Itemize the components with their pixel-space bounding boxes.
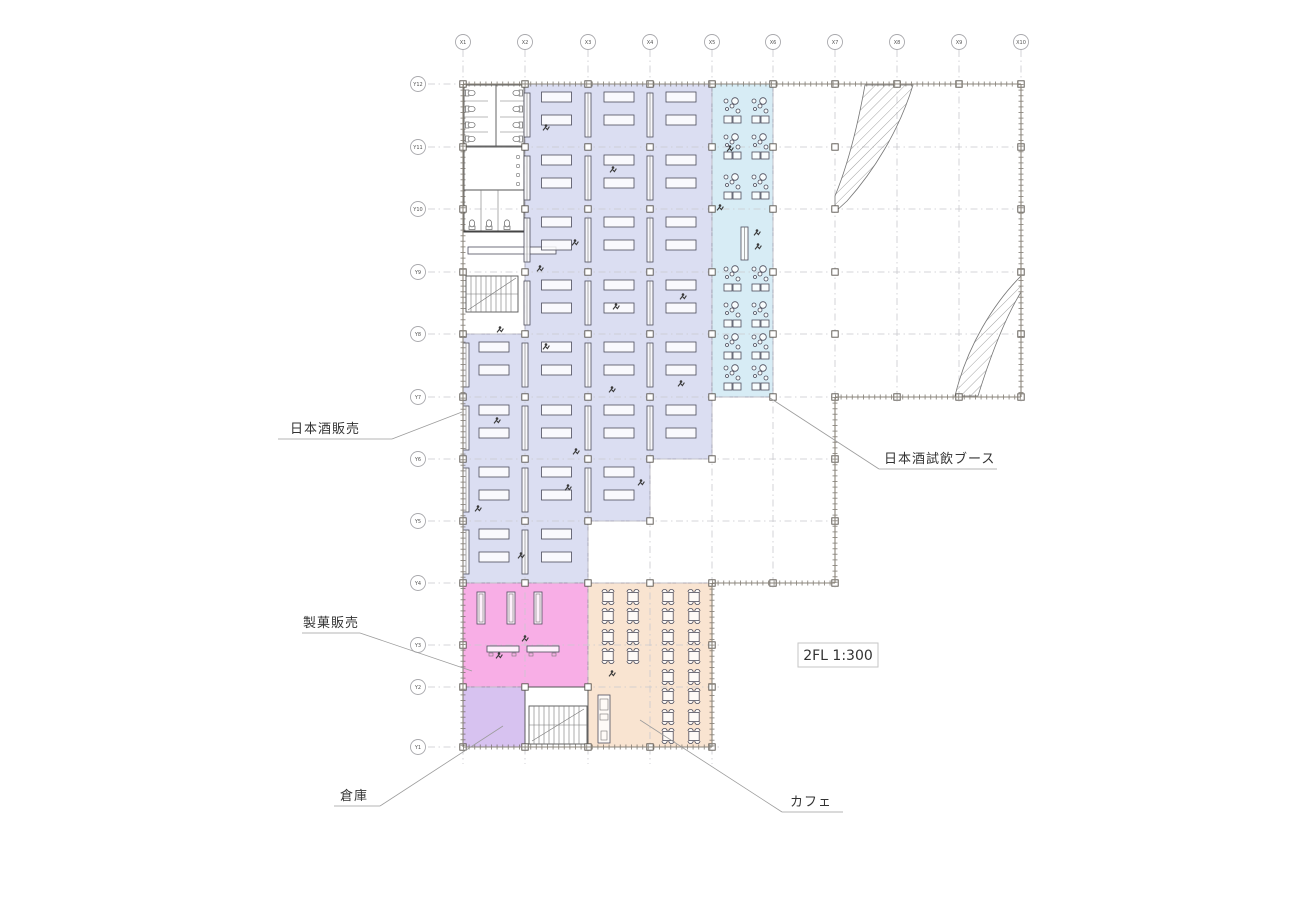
column-marker	[709, 206, 715, 212]
square-table	[761, 352, 769, 359]
display-table	[666, 178, 696, 188]
round-table	[760, 334, 767, 341]
stairs-upper	[466, 276, 518, 312]
square-table	[733, 383, 741, 390]
round-table	[736, 376, 740, 380]
round-table	[764, 109, 768, 113]
column-marker	[832, 144, 838, 150]
display-table	[542, 467, 572, 477]
display-table	[479, 552, 509, 562]
square-table	[724, 192, 732, 199]
column-marker	[770, 394, 776, 400]
round-table	[726, 184, 729, 187]
label-cafe: カフェ	[790, 795, 832, 810]
square-table	[733, 320, 741, 327]
grid-bubble-x9-label: X9	[956, 40, 963, 46]
display-table	[604, 155, 634, 165]
round-table	[764, 313, 768, 317]
column-marker	[522, 206, 528, 212]
grid-bubble-y-label: Y7	[414, 395, 421, 401]
column-marker	[832, 331, 838, 337]
display-table	[604, 115, 634, 125]
column-marker	[585, 144, 591, 150]
label-storage: 倉庫	[340, 789, 368, 804]
display-table	[604, 428, 634, 438]
column-marker	[522, 518, 528, 524]
round-table	[754, 312, 757, 315]
display-table	[666, 428, 696, 438]
round-table	[760, 134, 767, 141]
square-table	[761, 192, 769, 199]
round-table	[758, 272, 762, 276]
column-marker	[832, 269, 838, 275]
grid-bubble-y-label: Y1	[414, 745, 421, 751]
round-table	[736, 109, 740, 113]
square-table	[724, 320, 732, 327]
grid-bubble-x5-label: X5	[709, 40, 716, 46]
column-marker	[647, 456, 653, 462]
round-table	[752, 267, 756, 271]
column-marker	[522, 269, 528, 275]
scale-annotation: 2FL 1:300	[798, 643, 878, 667]
label-confectionery: 製菓販売	[303, 615, 359, 631]
round-table	[764, 376, 768, 380]
display-table	[666, 217, 696, 227]
round-table	[724, 366, 728, 370]
round-table	[736, 277, 740, 281]
display-table	[542, 155, 572, 165]
column-marker	[647, 206, 653, 212]
display-table	[604, 365, 634, 375]
column-marker	[522, 684, 528, 690]
square-table	[724, 383, 732, 390]
column-marker	[770, 269, 776, 275]
round-table	[732, 302, 739, 309]
round-table	[758, 371, 762, 375]
round-table	[754, 276, 757, 279]
column-marker	[709, 456, 715, 462]
square-table	[761, 152, 769, 159]
square-table	[761, 320, 769, 327]
square-table	[724, 352, 732, 359]
column-marker	[585, 580, 591, 586]
column-marker	[647, 331, 653, 337]
display-table	[542, 240, 572, 250]
display-table	[666, 240, 696, 250]
display-table	[479, 428, 509, 438]
display-table	[542, 405, 572, 415]
round-table	[754, 344, 757, 347]
square-table	[752, 116, 760, 123]
grid-bubble-x6-label: X6	[770, 40, 777, 46]
display-table	[604, 240, 634, 250]
column-marker	[522, 394, 528, 400]
grid-bubble-x1-label: X1	[460, 40, 467, 46]
column-marker	[585, 331, 591, 337]
square-table	[733, 352, 741, 359]
display-table	[479, 365, 509, 375]
display-table	[604, 405, 634, 415]
round-table	[736, 185, 740, 189]
grid-bubble-x8-label: X8	[894, 40, 901, 46]
column-marker	[522, 456, 528, 462]
display-table	[542, 490, 572, 500]
column-marker	[585, 269, 591, 275]
round-table	[752, 175, 756, 179]
column-marker	[585, 394, 591, 400]
column-marker	[647, 269, 653, 275]
round-table	[752, 135, 756, 139]
display-table	[604, 178, 634, 188]
square-table	[752, 383, 760, 390]
display-table	[604, 467, 634, 477]
round-table	[760, 365, 767, 372]
display-table	[542, 303, 572, 313]
round-table	[732, 98, 739, 105]
column-marker	[585, 518, 591, 524]
grid-bubble-y-label: Y2	[414, 685, 421, 691]
display-table	[479, 529, 509, 539]
label-sake-sales: 日本酒販売	[290, 421, 360, 437]
round-table	[726, 276, 729, 279]
round-table	[754, 108, 757, 111]
round-table	[724, 267, 728, 271]
round-table	[732, 266, 739, 273]
round-table	[760, 174, 767, 181]
atrium-ramps	[835, 85, 1021, 396]
square-table	[761, 284, 769, 291]
display-table	[666, 405, 696, 415]
zone-storage	[463, 687, 525, 747]
round-table	[736, 313, 740, 317]
square-table	[733, 116, 741, 123]
round-table	[730, 340, 734, 344]
column-marker	[522, 580, 528, 586]
column-marker	[647, 518, 653, 524]
round-table	[764, 277, 768, 281]
round-table	[736, 345, 740, 349]
square-table	[752, 192, 760, 199]
display-table	[666, 280, 696, 290]
display-table	[666, 342, 696, 352]
tasting-counter	[741, 227, 748, 260]
display-table	[666, 115, 696, 125]
round-table	[730, 308, 734, 312]
grid-bubble-x4-label: X4	[647, 40, 654, 46]
grid-bubble-x2-label: X2	[522, 40, 529, 46]
round-table	[754, 144, 757, 147]
round-table	[758, 104, 762, 108]
display-table	[542, 92, 572, 102]
grid-bubble-y-label: Y6	[414, 457, 421, 463]
column-marker	[522, 331, 528, 337]
round-table	[758, 308, 762, 312]
grid-bubble-x10-label: X10	[1016, 40, 1026, 46]
round-table	[732, 174, 739, 181]
display-table	[604, 342, 634, 352]
grid-bubble-y-label: Y12	[412, 82, 422, 88]
round-table	[726, 144, 729, 147]
display-table	[542, 529, 572, 539]
square-table	[752, 284, 760, 291]
round-table	[758, 340, 762, 344]
display-table	[604, 217, 634, 227]
square-table	[761, 116, 769, 123]
round-table	[736, 145, 740, 149]
grid-bubble-y-label: Y3	[414, 643, 421, 649]
display-table	[542, 178, 572, 188]
display-table	[604, 280, 634, 290]
square-table	[724, 116, 732, 123]
round-table	[760, 266, 767, 273]
square-table	[733, 284, 741, 291]
cafe-counter	[598, 695, 610, 743]
round-table	[752, 303, 756, 307]
square-table	[724, 284, 732, 291]
ramp-band-upper	[835, 85, 913, 212]
display-table	[604, 490, 634, 500]
round-table	[732, 134, 739, 141]
grid-bubble-y-label: Y10	[412, 207, 422, 213]
grid-bubble-x3-label: X3	[585, 40, 592, 46]
round-table	[758, 140, 762, 144]
round-table	[764, 345, 768, 349]
display-table	[542, 280, 572, 290]
square-table	[752, 352, 760, 359]
display-table	[666, 365, 696, 375]
square-table	[761, 383, 769, 390]
display-table	[542, 552, 572, 562]
display-table	[666, 92, 696, 102]
column-marker	[770, 144, 776, 150]
round-table	[752, 335, 756, 339]
round-table	[764, 185, 768, 189]
floor-plan-page: X1X2X3X4X5X6X7X8X9X10Y12Y11Y10Y9Y8Y7Y6Y5…	[0, 0, 1300, 919]
column-marker	[647, 144, 653, 150]
round-table	[726, 375, 729, 378]
round-table	[760, 302, 767, 309]
column-marker	[585, 456, 591, 462]
display-table	[479, 342, 509, 352]
round-table	[758, 180, 762, 184]
label-sake-tasting: 日本酒試飲ブース	[884, 451, 995, 467]
display-table	[479, 405, 509, 415]
column-marker	[647, 394, 653, 400]
round-table	[724, 135, 728, 139]
column-marker	[709, 394, 715, 400]
column-marker	[647, 580, 653, 586]
round-table	[732, 334, 739, 341]
round-table	[754, 184, 757, 187]
display-table	[604, 303, 634, 313]
display-table	[666, 303, 696, 313]
round-table	[760, 98, 767, 105]
column-marker	[709, 269, 715, 275]
round-table	[724, 335, 728, 339]
restrooms	[463, 85, 524, 232]
round-table	[724, 175, 728, 179]
round-table	[726, 108, 729, 111]
column-marker	[585, 684, 591, 690]
square-table	[752, 152, 760, 159]
round-table	[730, 104, 734, 108]
round-table	[730, 371, 734, 375]
square-table	[724, 152, 732, 159]
round-table	[764, 145, 768, 149]
round-table	[724, 303, 728, 307]
grid-bubble-y-label: Y5	[414, 519, 421, 525]
grid-bubble-x7-label: X7	[832, 40, 839, 46]
person-figure	[497, 326, 503, 332]
round-table	[754, 375, 757, 378]
round-table	[726, 344, 729, 347]
round-table	[726, 312, 729, 315]
column-marker	[770, 331, 776, 337]
display-table	[542, 115, 572, 125]
stairs-lower	[525, 687, 588, 747]
round-table	[752, 366, 756, 370]
square-table	[752, 320, 760, 327]
grid-bubble-y-label: Y4	[414, 581, 421, 587]
round-table	[730, 180, 734, 184]
display-table	[542, 428, 572, 438]
grid-bubble-y-label: Y8	[414, 332, 421, 338]
display-table	[666, 155, 696, 165]
round-table	[730, 140, 734, 144]
display-table	[542, 365, 572, 375]
column-marker	[522, 144, 528, 150]
display-table	[542, 217, 572, 227]
floor-plan-drawing: X1X2X3X4X5X6X7X8X9X10Y12Y11Y10Y9Y8Y7Y6Y5…	[0, 0, 1300, 919]
round-table	[730, 272, 734, 276]
square-table	[733, 192, 741, 199]
grid-bubble-y-label: Y11	[412, 145, 422, 151]
column-marker	[770, 206, 776, 212]
display-table	[479, 467, 509, 477]
display-table	[604, 92, 634, 102]
column-marker	[709, 144, 715, 150]
column-marker	[709, 331, 715, 337]
round-table	[752, 99, 756, 103]
scale-label: 2FL 1:300	[803, 648, 873, 664]
grid-bubble-y-label: Y9	[414, 270, 421, 276]
ramp-band-lower	[955, 276, 1021, 396]
round-table	[732, 365, 739, 372]
column-marker	[585, 206, 591, 212]
round-table	[724, 99, 728, 103]
column-marker	[832, 206, 838, 212]
display-table	[479, 490, 509, 500]
square-table	[733, 152, 741, 159]
leader-confectionery	[302, 633, 472, 671]
